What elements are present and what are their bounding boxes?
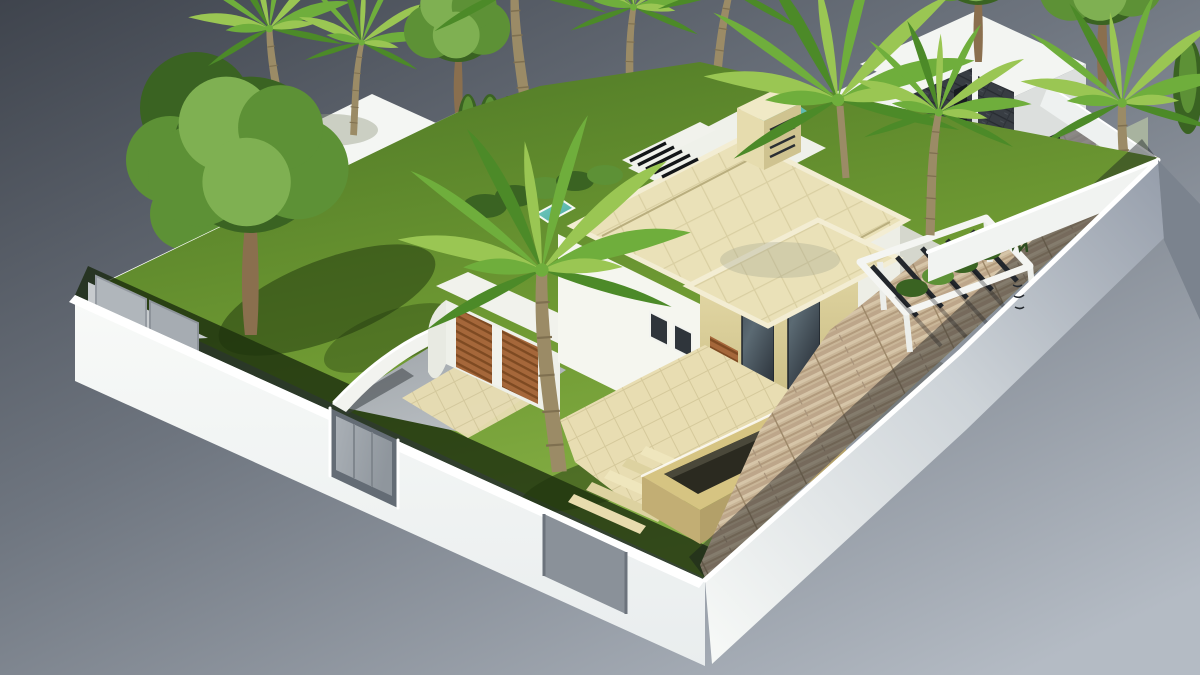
villa-render [0,0,1200,675]
render-canvas [0,0,1200,675]
